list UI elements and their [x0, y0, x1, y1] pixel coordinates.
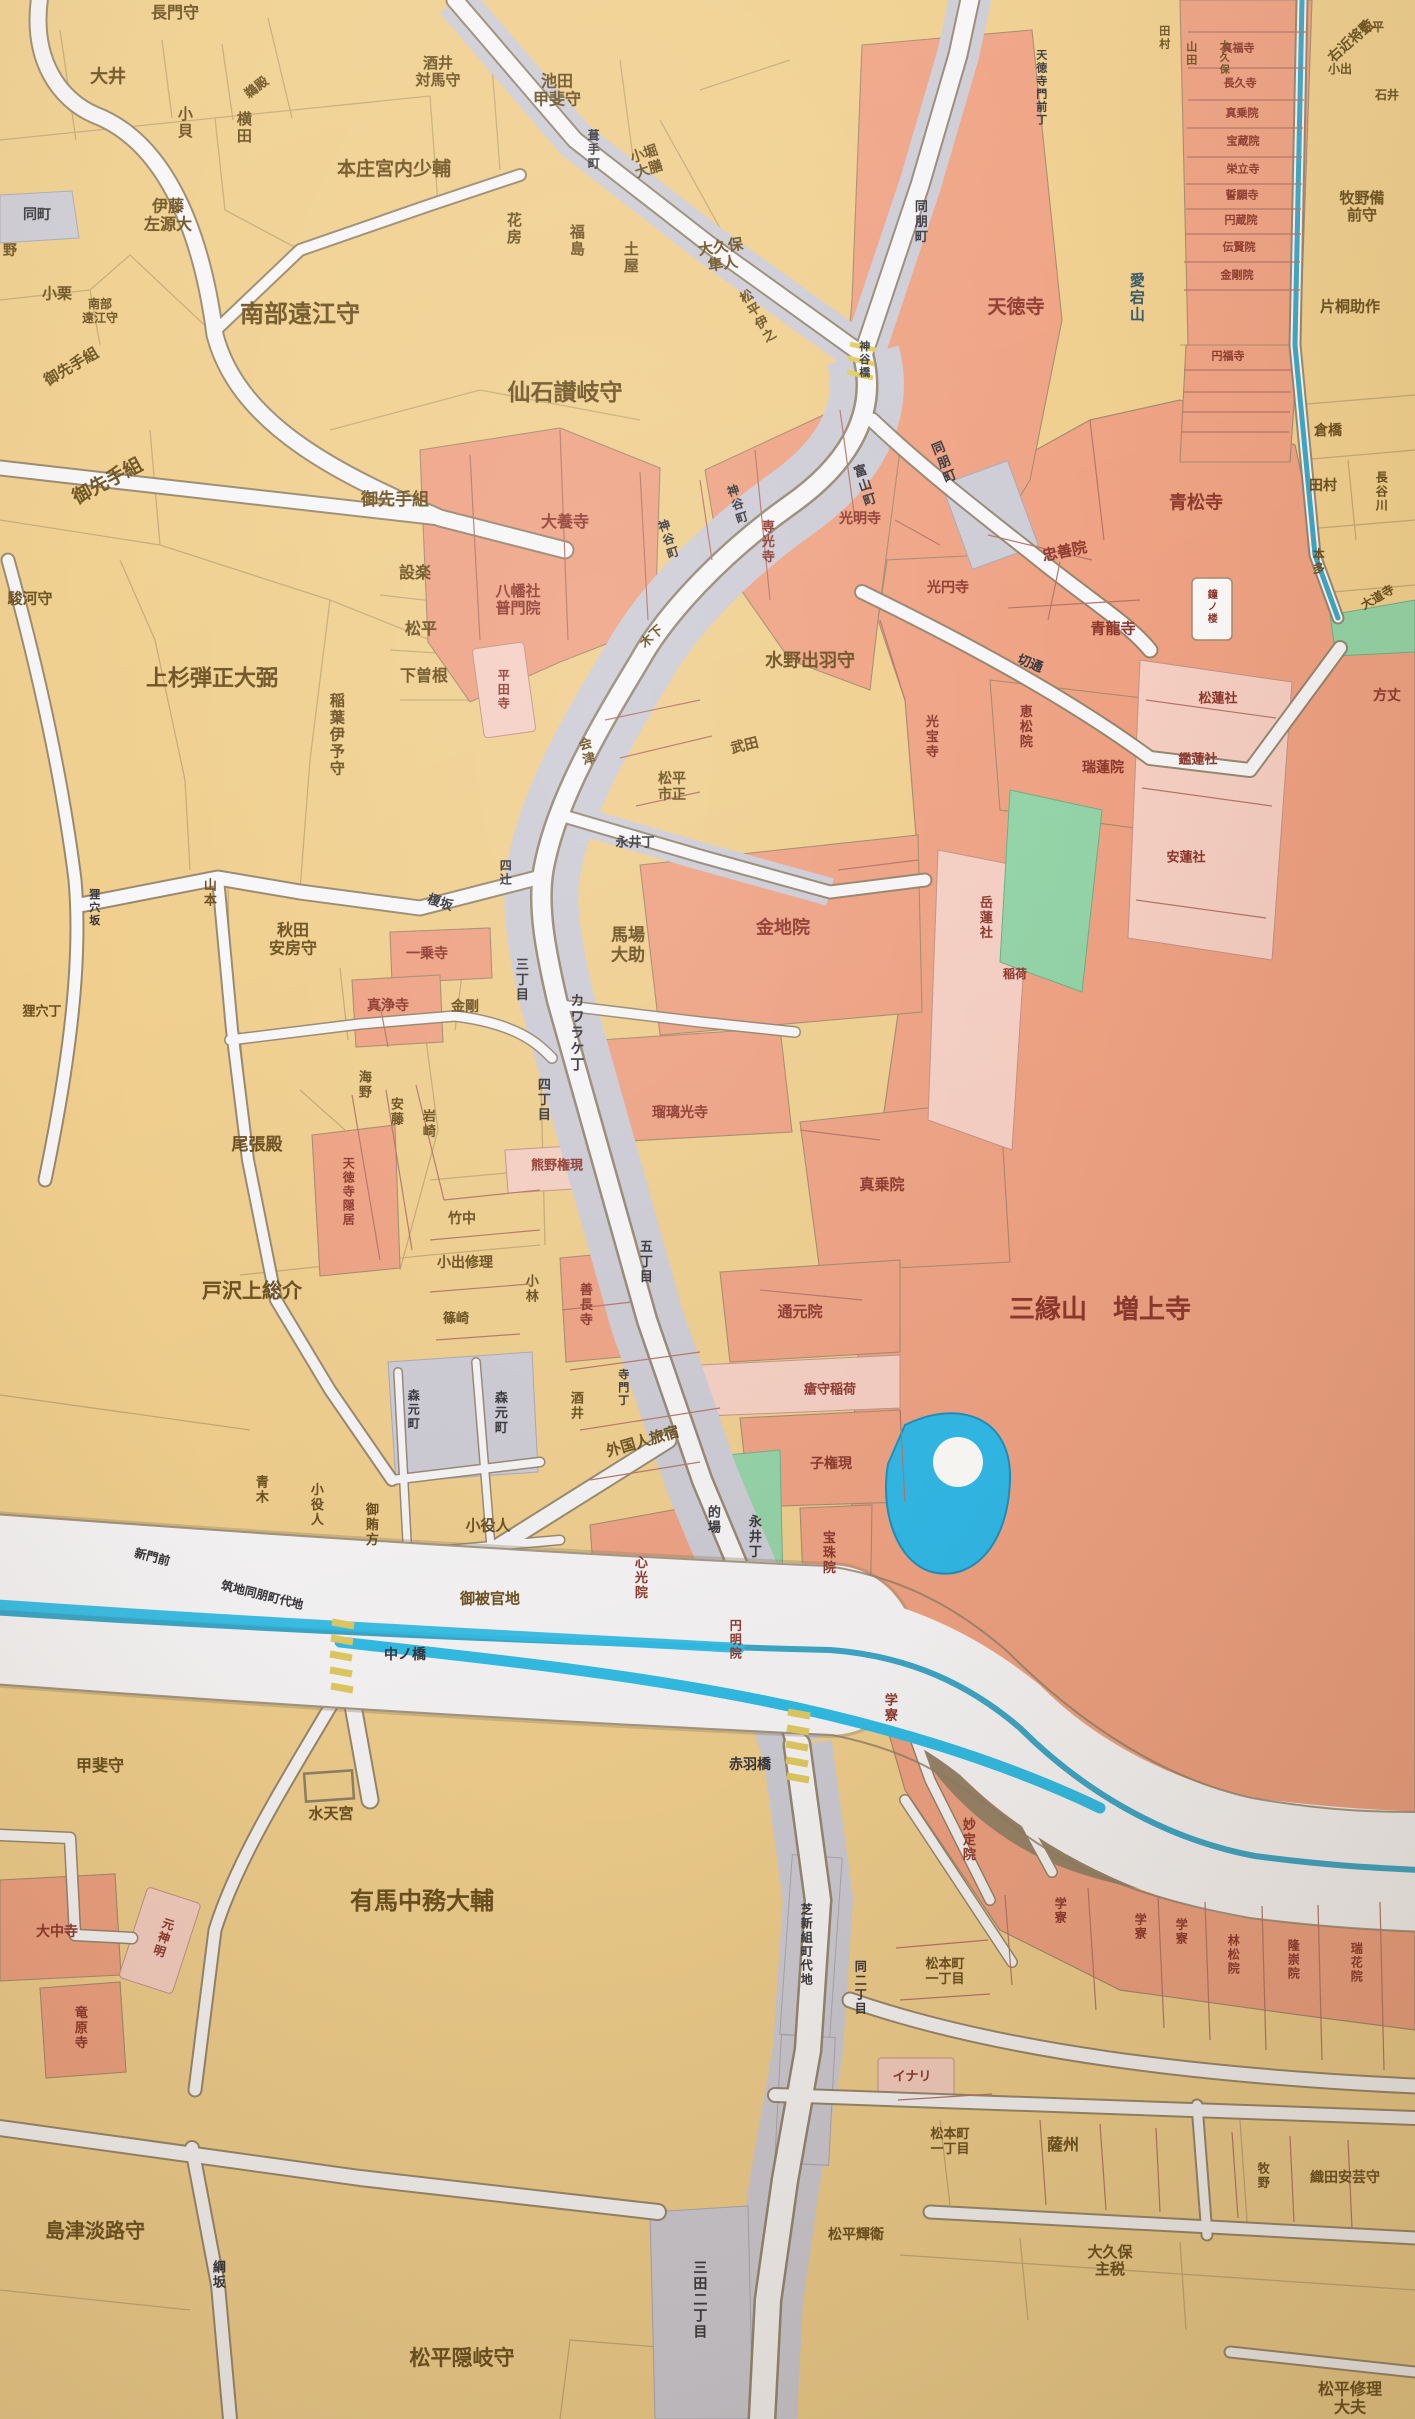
map-label: 稲葉伊予守 — [327, 693, 343, 778]
map-label: 四丁目 — [536, 1078, 550, 1123]
map-label: 五丁目 — [638, 1240, 652, 1285]
map-label: 木下 — [637, 623, 666, 652]
map-label: 元神明 — [151, 1916, 176, 1960]
map-label: カワラケ丁 — [570, 993, 585, 1073]
map-label: 松平隠岐守 — [410, 2346, 515, 2370]
map-label: 安藤 — [389, 1097, 403, 1127]
map-label: 御被官地 — [460, 1591, 520, 1608]
map-label: 織田安芸守 — [1310, 2171, 1380, 2187]
map-label: 大道寺 — [1359, 583, 1397, 613]
map-label: 新門前 — [133, 1547, 171, 1569]
map-label: 稲荷 — [1003, 968, 1027, 982]
map-label: 四辻 — [499, 859, 512, 887]
map-label: 金地院 — [756, 918, 810, 939]
map-label: 鑑蓮社 — [1178, 753, 1217, 768]
map-label: 瘡守稲荷 — [804, 1383, 856, 1398]
map-label: 池田 甲斐守 — [533, 74, 581, 111]
map-label: 学寮 — [1134, 1913, 1147, 1941]
map-label: 武田 — [729, 736, 760, 758]
map-label: 酒井 対馬守 — [415, 56, 460, 91]
map-label: 土屋 — [621, 241, 637, 275]
map-label: 青木 — [254, 1475, 268, 1505]
map-label: 真乗院 — [859, 1177, 904, 1194]
map-label: 大久保 — [1217, 40, 1228, 76]
map-label: 天徳寺隠居 — [342, 1157, 355, 1227]
map-label: 小林 — [524, 1274, 538, 1304]
map-label: 篠崎 — [443, 1312, 469, 1327]
map-label: 学寮 — [1175, 1918, 1188, 1946]
map-label: 御賄方 — [364, 1503, 378, 1548]
map-label: 忠善院 — [1041, 540, 1089, 566]
map-label: 松平伊之 — [736, 288, 778, 347]
map-label: 切通 — [1015, 652, 1045, 676]
map-label: 海野 — [357, 1070, 371, 1100]
map-label: 赤羽橋 — [729, 1756, 771, 1772]
map-label: 外国人旅宿 — [605, 1424, 682, 1461]
map-label: 福島 — [567, 224, 583, 258]
map-label: 酒井 — [569, 1391, 583, 1421]
map-label: 同町 — [23, 206, 51, 222]
map-label: 長久寺 — [1224, 78, 1257, 91]
map-label: 宝珠院 — [821, 1531, 835, 1576]
map-label: 有馬中務大輔 — [350, 1889, 494, 1917]
map-label: 同二丁目 — [854, 1960, 867, 2016]
map-label: 円明院 — [729, 1619, 742, 1661]
map-label: 光円寺 — [927, 581, 969, 597]
map-label: 甲斐守 — [76, 1758, 124, 1776]
map-label: 大井 — [90, 67, 126, 88]
map-label: イナリ — [893, 2070, 932, 2085]
map-label: 松平修理大夫 — [1318, 2382, 1383, 2419]
map-label: 山田 — [1184, 41, 1196, 67]
map-label: 薩州 — [1047, 2137, 1079, 2155]
map-label: 葺手町 — [587, 129, 600, 171]
map-label: 小貝 — [175, 106, 191, 140]
map-label: 妙定院 — [961, 1818, 975, 1863]
map-label: 神谷町 — [656, 518, 681, 562]
map-label: 瑞蓮院 — [1082, 761, 1124, 777]
map-label: 専光寺 — [760, 520, 774, 565]
map-label: 松本町 一丁目 — [925, 1957, 964, 1987]
map-label: 通元院 — [777, 1304, 822, 1321]
map-label: 松本町 一丁目 — [930, 2127, 969, 2157]
map-label: 三縁山 増上寺 — [1009, 1295, 1191, 1325]
map-label: 野 — [3, 244, 17, 260]
map-label: 本庄宮内少輔 — [337, 159, 451, 181]
map-label: 寺門丁 — [616, 1369, 628, 1408]
map-label: 鐘ノ楼 — [1205, 589, 1216, 625]
map-label: 設楽 — [399, 565, 431, 583]
map-label: 大久保 主税 — [1087, 2245, 1132, 2280]
map-label: 水野出羽守 — [765, 651, 855, 672]
map-label: 恵松院 — [1018, 705, 1032, 750]
map-label: 長谷川 — [1375, 471, 1388, 513]
map-label: 円福寺 — [1212, 351, 1245, 364]
map-label: 南部 遠江守 — [82, 298, 118, 326]
map-label: 熊野権現 — [531, 1159, 583, 1174]
map-label: 森元町 — [407, 1389, 420, 1431]
map-label: 誓願寺 — [1226, 190, 1259, 203]
map-label: 瑞花院 — [1350, 1942, 1363, 1984]
map-label: 島津淡路守 — [45, 2221, 145, 2244]
map-label: 善長寺 — [578, 1283, 592, 1328]
map-label: 真浄寺 — [367, 999, 409, 1015]
map-label: 松平 市正 — [658, 772, 686, 804]
map-label: 学寮 — [1054, 1897, 1067, 1925]
map-label: 鵜殿 — [242, 74, 272, 102]
map-label: 青龍寺 — [1090, 621, 1135, 638]
map-label: 安蓮社 — [1166, 851, 1205, 866]
map-label: 田村 — [1309, 479, 1337, 495]
map-label: 方丈 — [1373, 689, 1401, 705]
map-label: 瑠璃光寺 — [652, 1106, 708, 1122]
map-label: 倉橋 — [1314, 424, 1342, 440]
map-label: 心光院 — [633, 1556, 647, 1601]
map-label: 小堀 大膳 — [629, 143, 666, 182]
map-label: 平田寺 — [497, 669, 510, 711]
map-label: 松平 — [405, 621, 437, 639]
map-label: 花房 — [504, 212, 520, 246]
map-label: 伊藤 左源大 — [144, 199, 192, 236]
map-label: 水天宮 — [308, 1806, 353, 1823]
map-label: 御先手組 — [361, 490, 429, 510]
map-label: 御先手組 — [69, 455, 146, 510]
map-label: 神谷町 — [725, 483, 750, 527]
map-label: 天徳寺 — [987, 297, 1044, 319]
map-label: 金剛 — [451, 1000, 479, 1016]
map-label: 竹中 — [448, 1212, 476, 1228]
map-label: 中ノ橋 — [384, 1646, 426, 1662]
map-label: 長門守 — [151, 5, 199, 23]
map-label: 本多 — [1312, 548, 1325, 576]
map-label: 学寮 — [883, 1693, 897, 1723]
map-label: 愛宕山 — [1127, 273, 1143, 324]
map-label: 金剛院 — [1221, 270, 1254, 283]
map-label: 馬場 大助 — [611, 925, 645, 964]
map-label: 山本 — [202, 878, 216, 908]
edo-kiriezu-map-photo: 長門守大井小貝横田鵜殿本庄宮内少輔酒井 対馬守伊藤 左源大同町野小栗南部 遠江守… — [0, 0, 1415, 2419]
map-label: 竜原寺 — [73, 2006, 87, 2051]
map-label: 神谷橋 — [857, 341, 869, 380]
map-label: 光明寺 — [839, 512, 881, 528]
map-label: 牧野備前守 — [1336, 191, 1389, 226]
map-label: 片桐助作 — [1320, 299, 1380, 316]
map-label: 三田二丁目 — [693, 2260, 708, 2340]
map-label: 松平輝衛 — [828, 2228, 884, 2244]
map-label: 松平 — [1360, 21, 1384, 35]
map-label: 綱坂 — [211, 2260, 225, 2290]
map-label: 小栗 — [42, 286, 72, 303]
map-label: 一乗寺 — [406, 947, 448, 963]
map-label: 青松寺 — [1169, 493, 1223, 514]
map-label: 狸穴坂 — [87, 889, 99, 928]
map-label: 駿河守 — [7, 591, 52, 608]
map-label: 仙石讃岐守 — [508, 380, 623, 406]
map-label: 尾張殿 — [232, 1135, 283, 1155]
map-label: 円蔵院 — [1225, 215, 1258, 228]
map-label: 林松院 — [1227, 1934, 1240, 1976]
map-label: 筑地同朋町代地 — [220, 1579, 305, 1613]
map-label: 南部遠江守 — [240, 302, 360, 330]
map-label: 横田 — [234, 111, 250, 145]
map-label: 三丁目 — [514, 958, 528, 1003]
map-label: 松蓮社 — [1198, 692, 1237, 707]
map-label: 宝蔵院 — [1227, 136, 1260, 149]
map-label: 伝賢院 — [1223, 242, 1256, 255]
map-label: 同朋町 — [913, 200, 927, 245]
map-label: 小出 — [1328, 63, 1352, 77]
map-label: 会津 — [576, 736, 596, 768]
map-label: 光宝寺 — [924, 715, 938, 760]
map-label: 永井丁 — [615, 836, 654, 851]
map-label: 石井 — [1375, 89, 1399, 103]
map-label: 大養寺 — [541, 514, 589, 532]
map-label: 下曽根 — [400, 668, 448, 686]
map-label: 小役人 — [465, 1518, 510, 1535]
map-label: 天徳寺門前丁 — [1034, 49, 1046, 127]
map-label: 牧野 — [1257, 2162, 1270, 2190]
map-label: 田村 — [1157, 25, 1169, 51]
map-label: 子権現 — [810, 1457, 852, 1473]
map-label: 岩崎 — [421, 1109, 435, 1139]
map-label: 狸穴丁 — [22, 1005, 61, 1020]
map-label: 小出修理 — [437, 1256, 493, 1272]
map-label: 永井丁 — [747, 1515, 761, 1560]
map-label: 真乗院 — [1226, 108, 1259, 121]
map-label: 榎坂 — [425, 892, 454, 914]
map-label: 上杉弾正大弼 — [146, 665, 278, 690]
map-label: 岳蓮社 — [978, 896, 992, 941]
map-label-layer: 長門守大井小貝横田鵜殿本庄宮内少輔酒井 対馬守伊藤 左源大同町野小栗南部 遠江守… — [0, 0, 1415, 2419]
map-label: 富山町 — [851, 462, 878, 509]
map-label: 大久保 隼人 — [697, 237, 746, 277]
map-label: 秋田 安房守 — [269, 923, 317, 960]
map-label: 小役人 — [309, 1483, 323, 1528]
map-label: 栄立寺 — [1227, 164, 1260, 177]
map-label: 御先手組 — [42, 346, 103, 391]
map-label: 大中寺 — [36, 1925, 78, 1941]
map-label: 同朋町 — [928, 440, 958, 487]
map-label: 戸沢上総介 — [202, 1281, 302, 1304]
map-label: 的場 — [706, 1505, 720, 1535]
map-label: 森元町 — [493, 1391, 507, 1436]
map-label: 隆崇院 — [1287, 1939, 1300, 1981]
map-label: 八幡社 普門院 — [495, 584, 540, 619]
map-label: 芝新組町代地 — [800, 1903, 813, 1987]
